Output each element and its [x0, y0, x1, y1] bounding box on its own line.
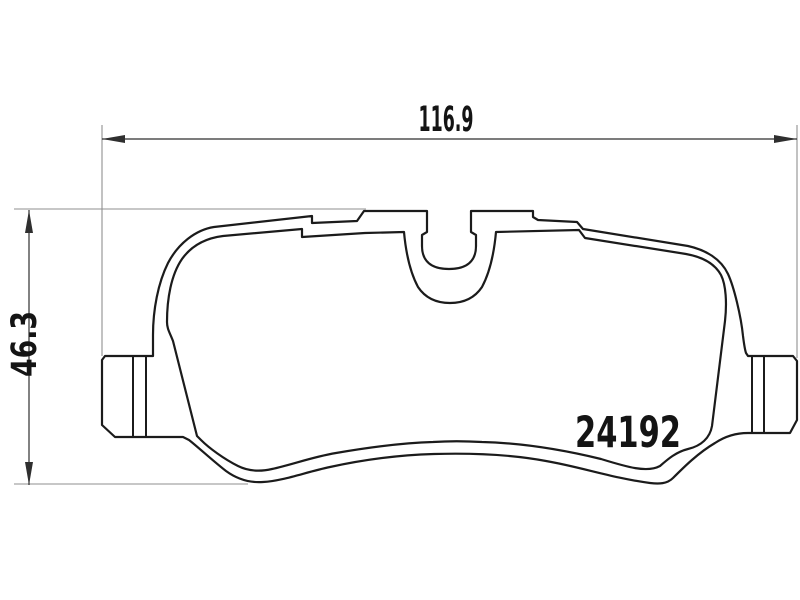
- arrowhead-right-icon: [774, 135, 797, 143]
- arrowhead-up-icon: [25, 210, 33, 233]
- backing-plate-contour: [102, 211, 797, 483]
- height-dimension: 46.3: [5, 210, 45, 485]
- brake-pad-outline: [102, 211, 797, 483]
- right-tab-seams: [752, 356, 764, 433]
- part-number-label: 24192: [575, 408, 681, 458]
- drawing-canvas: 116.9 46.3 24192: [0, 0, 800, 600]
- height-dimension-label: 46.3: [5, 311, 45, 377]
- arrowhead-left-icon: [102, 135, 125, 143]
- width-dimension-label: 116.9: [419, 100, 474, 140]
- arrowhead-down-icon: [25, 462, 33, 485]
- brake-pad-technical-diagram: 116.9 46.3 24192: [0, 0, 800, 600]
- left-tab-seams: [133, 357, 146, 437]
- width-dimension: 116.9: [102, 100, 797, 143]
